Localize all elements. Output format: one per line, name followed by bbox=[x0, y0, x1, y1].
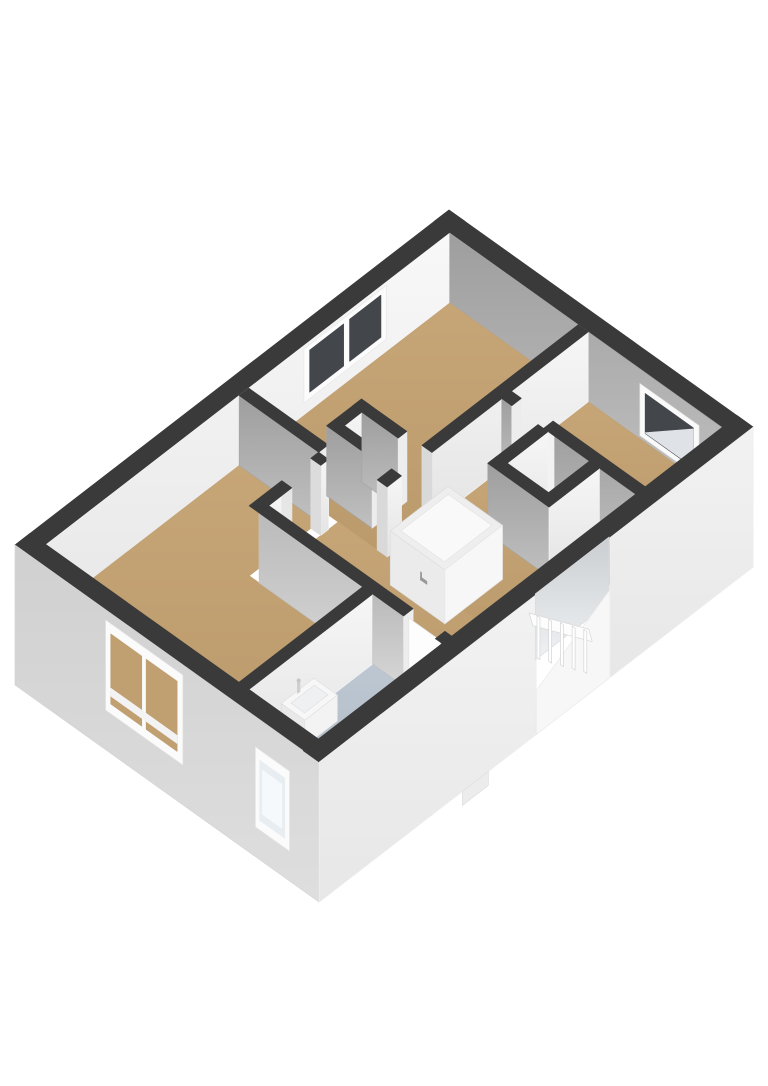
face bbox=[560, 623, 563, 667]
face bbox=[584, 629, 587, 673]
face bbox=[421, 572, 422, 581]
face bbox=[311, 458, 321, 535]
face bbox=[537, 616, 540, 660]
floorplan-page bbox=[0, 0, 768, 1086]
face bbox=[377, 480, 387, 557]
floorplan-3d-canvas bbox=[0, 0, 768, 1086]
face bbox=[572, 626, 575, 670]
faucet-icon bbox=[297, 679, 301, 683]
face bbox=[549, 619, 552, 663]
